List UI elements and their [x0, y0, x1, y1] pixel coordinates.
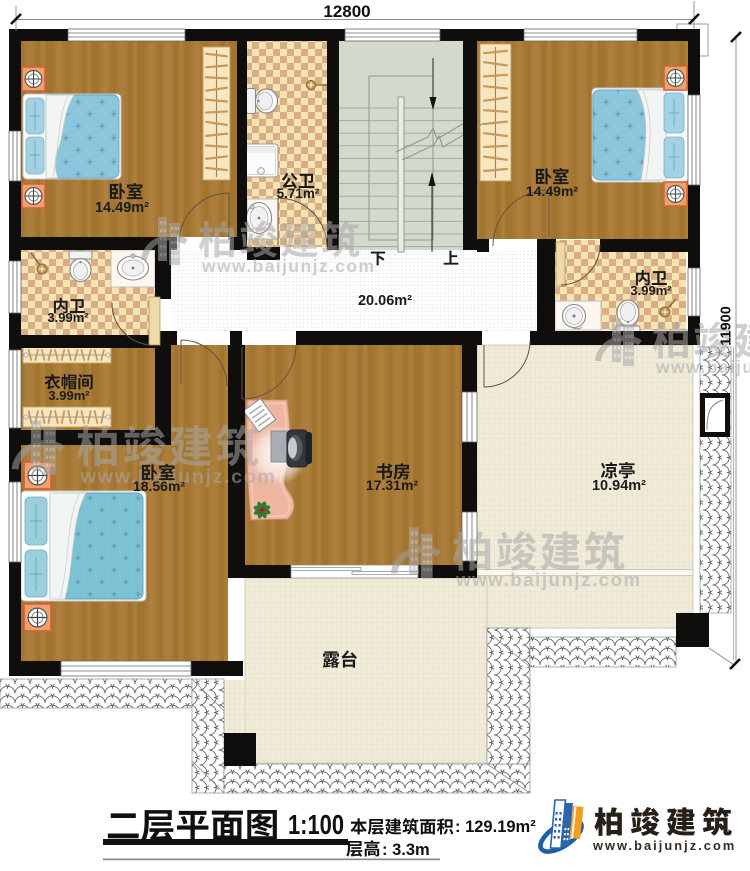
svg-text:10.94m²: 10.94m² — [592, 478, 646, 494]
svg-text:5.71m²: 5.71m² — [277, 186, 320, 201]
svg-text:11900: 11900 — [719, 306, 735, 346]
svg-text:12800: 12800 — [323, 2, 370, 21]
svg-text:: 129.19m²: : 129.19m² — [455, 818, 536, 836]
svg-text:1:100: 1:100 — [288, 809, 344, 840]
svg-text:20.06m²: 20.06m² — [358, 293, 412, 309]
svg-text:www.baijunjz.com: www.baijunjz.com — [592, 838, 736, 853]
svg-text:: 3.3m: : 3.3m — [382, 841, 430, 859]
svg-text:14.49m²: 14.49m² — [526, 183, 578, 199]
svg-text:14.49m²: 14.49m² — [95, 200, 149, 216]
svg-text:www.baijunjz.com: www.baijunjz.com — [455, 569, 642, 590]
svg-text:3.99m²: 3.99m² — [630, 283, 672, 298]
svg-text:18.56m²: 18.56m² — [133, 478, 185, 494]
svg-text:3.99m²: 3.99m² — [47, 310, 89, 325]
svg-text:3.99m²: 3.99m² — [48, 388, 90, 403]
svg-text:www.baijunjz.com: www.baijunjz.com — [201, 256, 375, 276]
svg-text:17.31m²: 17.31m² — [366, 477, 418, 493]
